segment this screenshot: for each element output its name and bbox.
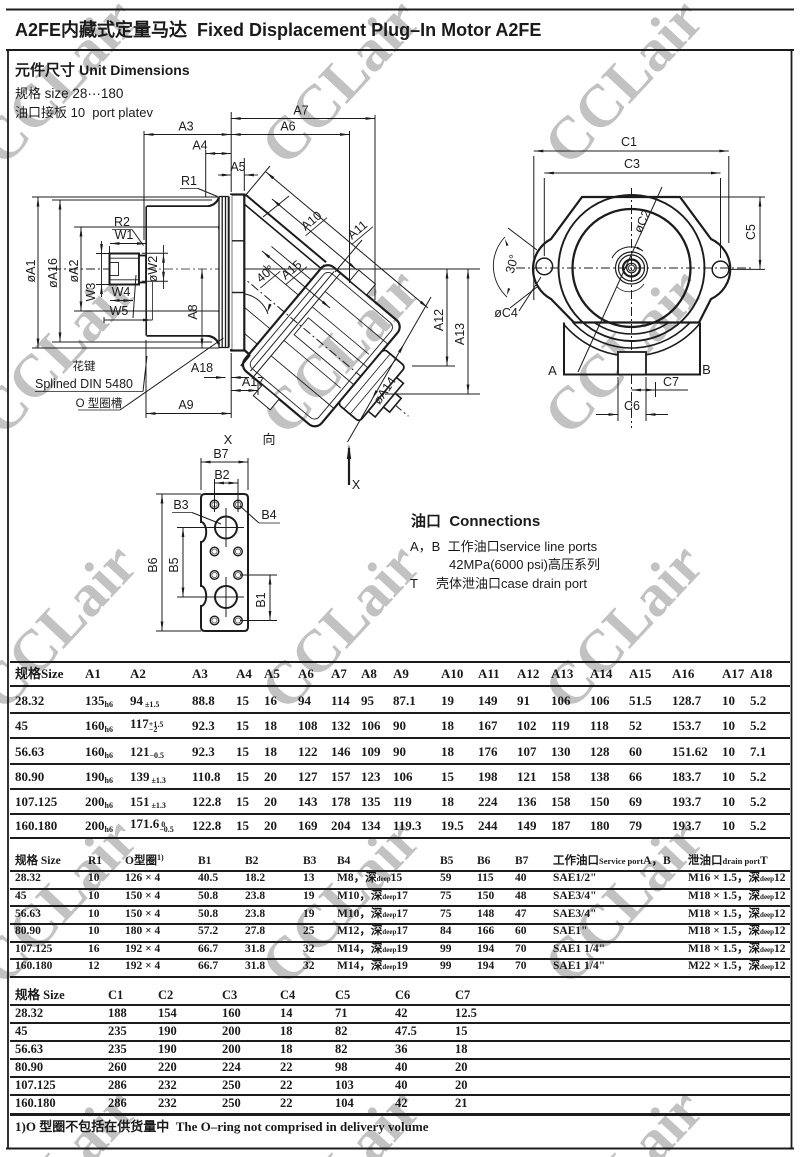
svg-text:X: X — [352, 478, 361, 492]
svg-text:W5: W5 — [110, 304, 129, 318]
svg-text:B: B — [702, 362, 711, 377]
svg-text:X: X — [224, 432, 233, 447]
svg-text:A13: A13 — [453, 323, 467, 345]
svg-text:B4: B4 — [261, 508, 276, 522]
svg-text:A12: A12 — [432, 309, 446, 331]
svg-text:A5: A5 — [230, 160, 245, 174]
svg-text:W4: W4 — [112, 285, 131, 299]
svg-text:A18: A18 — [191, 361, 213, 375]
svg-text:B7: B7 — [213, 447, 228, 461]
svg-text:B3: B3 — [173, 498, 188, 512]
svg-text:A10: A10 — [298, 208, 324, 233]
svg-text:B5: B5 — [167, 557, 181, 572]
svg-text:Splined DIN 5480: Splined DIN 5480 — [35, 377, 133, 391]
svg-text:向: 向 — [262, 432, 275, 447]
svg-text:花键: 花键 — [73, 359, 96, 373]
svg-text:40°: 40° — [254, 262, 277, 285]
svg-text:CCLair: CCLair — [248, 256, 433, 447]
svg-text:B6: B6 — [146, 557, 160, 572]
svg-text:A3: A3 — [178, 120, 193, 134]
svg-text:C7: C7 — [663, 375, 679, 389]
svg-text:øA16: øA16 — [46, 258, 60, 288]
svg-text:W1: W1 — [115, 228, 134, 242]
svg-text:øA2: øA2 — [67, 259, 81, 282]
svg-text:A8: A8 — [186, 304, 200, 319]
svg-text:O 型圈槽: O 型圈槽 — [76, 396, 123, 410]
svg-text:CCLair: CCLair — [531, 0, 716, 177]
svg-text:A4: A4 — [192, 139, 207, 153]
svg-text:A11: A11 — [345, 218, 370, 242]
svg-text:øC4: øC4 — [494, 306, 518, 320]
svg-text:C6: C6 — [624, 399, 640, 413]
svg-text:A: A — [548, 363, 557, 378]
svg-text:A9: A9 — [178, 398, 193, 412]
svg-text:B2: B2 — [214, 468, 229, 482]
svg-text:A6: A6 — [280, 120, 295, 134]
svg-text:øA1: øA1 — [24, 259, 38, 282]
svg-text:B1: B1 — [254, 592, 268, 607]
svg-text:øW2: øW2 — [146, 256, 160, 282]
svg-text:C3: C3 — [624, 157, 640, 171]
svg-text:R2: R2 — [114, 215, 130, 229]
svg-text:A15: A15 — [278, 257, 304, 282]
svg-text:R1: R1 — [181, 174, 197, 188]
svg-text:W3: W3 — [84, 283, 98, 302]
svg-text:C5: C5 — [744, 224, 758, 240]
svg-text:A7: A7 — [293, 104, 308, 118]
svg-text:C1: C1 — [621, 135, 637, 149]
svg-text:A17: A17 — [242, 375, 264, 389]
svg-text:30°: 30° — [503, 253, 521, 275]
